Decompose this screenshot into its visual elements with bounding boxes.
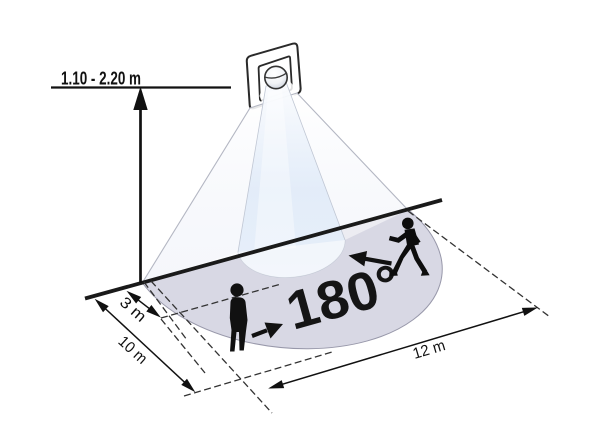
svg-text:1.10 - 2.20 m: 1.10 - 2.20 m [61,68,141,89]
